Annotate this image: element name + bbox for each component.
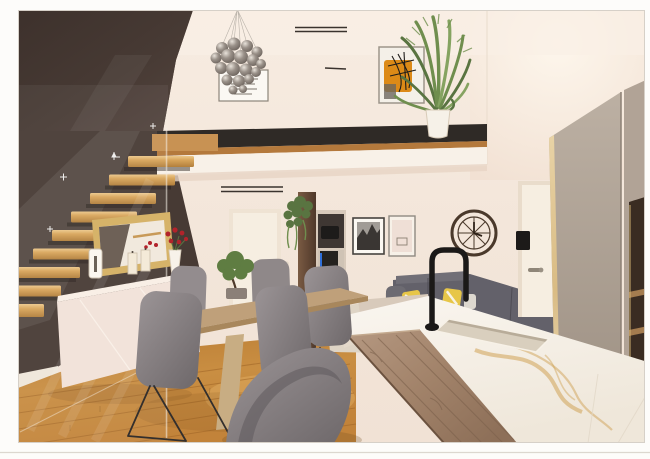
faucet-base — [425, 323, 439, 331]
pale-print-frame — [389, 216, 415, 256]
scanned-photo-page — [0, 0, 650, 459]
intercom-panel — [516, 231, 530, 250]
chair-left-end — [135, 290, 204, 390]
palm-pot — [426, 110, 450, 138]
photo-area — [0, 10, 648, 451]
bw-city-photo-frame — [353, 218, 384, 254]
sculpture-slot — [94, 256, 97, 272]
interior-rendering-photo — [0, 0, 650, 459]
bonsai-pot — [226, 288, 247, 299]
door-handle-rose — [539, 268, 544, 273]
niche-speaker-object — [321, 226, 339, 239]
